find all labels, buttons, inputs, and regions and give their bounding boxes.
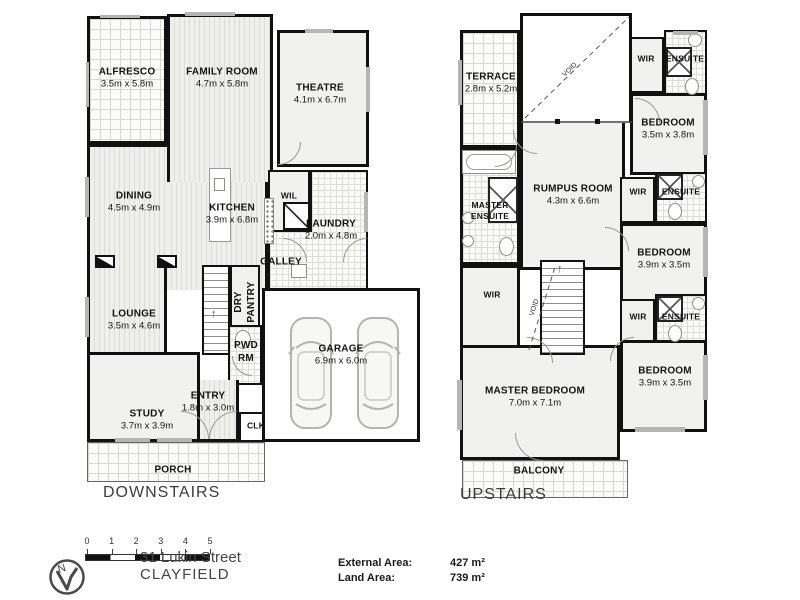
room-label-galley: GALLEY bbox=[260, 256, 302, 269]
room-label-wir-top: WIR bbox=[637, 53, 654, 64]
address-suburb: CLAYFIELD bbox=[140, 566, 241, 583]
column-marker bbox=[95, 255, 115, 268]
upstairs-plan: ↑ VOID VOID bbox=[455, 5, 715, 515]
downstairs-title: DOWNSTAIRS bbox=[103, 484, 220, 502]
window-marker bbox=[157, 438, 192, 442]
room-label-clk: CLK bbox=[247, 420, 265, 431]
room-label-bedroom-mid: BEDROOM3.9m x 3.5m bbox=[637, 246, 691, 271]
room-label-wir-mid: WIR bbox=[629, 186, 646, 197]
room-label-ensuite-bottom: ENSUITE bbox=[662, 311, 700, 322]
room-label-laundry: LAUNDRY2.0m x 4.8m bbox=[305, 217, 357, 242]
north-icon: N bbox=[46, 556, 88, 598]
window-marker bbox=[86, 62, 89, 107]
door-arc bbox=[610, 337, 634, 361]
room-label-theatre: THEATRE4.1m x 6.7m bbox=[294, 81, 346, 106]
address-street: 31 Lukin Street bbox=[140, 549, 241, 566]
scale-number: 0 bbox=[84, 536, 89, 546]
room-label-lounge: LOUNGE3.5m x 4.6m bbox=[108, 307, 160, 332]
scale-number: 4 bbox=[183, 536, 188, 546]
window-marker bbox=[115, 438, 150, 442]
window-marker bbox=[366, 67, 370, 112]
staircase-up bbox=[540, 260, 585, 355]
toilet-icon bbox=[668, 325, 682, 342]
room-wir-left bbox=[460, 265, 520, 353]
room-label-pwd-rm: PWD RM bbox=[231, 339, 261, 365]
external-area-label: External Area: bbox=[338, 557, 450, 569]
car-icon bbox=[355, 314, 401, 432]
external-area-value: 427 m² bbox=[450, 557, 485, 569]
room-label-family: FAMILY ROOM4.7m x 5.8m bbox=[186, 65, 258, 90]
room-label-ensuite-top: ENSUITE bbox=[666, 53, 704, 64]
window-marker bbox=[185, 12, 235, 16]
room-label-study: STUDY3.7m x 3.9m bbox=[121, 407, 173, 432]
room-label-kitchen: KITCHEN3.9m x 6.8m bbox=[206, 201, 258, 226]
window-marker bbox=[703, 355, 708, 400]
room-label-rumpus: RUMPUS ROOM4.3m x 6.6m bbox=[533, 182, 612, 207]
room-label-porch: PORCH bbox=[154, 464, 191, 477]
room-label-garage: GARAGE6.9m x 6.0m bbox=[315, 342, 367, 367]
window-marker bbox=[457, 380, 462, 430]
room-wir-top bbox=[630, 37, 664, 93]
scale-number: 2 bbox=[134, 536, 139, 546]
scale-number: 5 bbox=[207, 536, 212, 546]
floorplan-canvas: ↑ bbox=[0, 0, 800, 600]
room-label-dry-pantry: DRY PANTRY bbox=[232, 276, 258, 328]
upstairs-title: UPSTAIRS bbox=[460, 486, 547, 504]
basin-icon bbox=[462, 235, 474, 247]
window-marker bbox=[673, 31, 698, 35]
toilet-icon bbox=[685, 78, 699, 95]
window-marker bbox=[458, 60, 462, 105]
void-label: VOID bbox=[529, 298, 541, 316]
room-label-bedroom-bottom: BEDROOM3.9m x 3.5m bbox=[638, 364, 692, 389]
car-icon bbox=[288, 314, 334, 432]
toilet-icon bbox=[499, 237, 514, 256]
room-label-wir-left: WIR bbox=[483, 289, 500, 300]
room-void bbox=[520, 13, 632, 123]
room-label-master-ensuite: MASTER ENSUITE bbox=[461, 200, 519, 222]
basin-icon bbox=[692, 297, 705, 310]
land-area-value: 739 m² bbox=[450, 572, 485, 584]
window-marker bbox=[305, 29, 333, 33]
room-label-balcony: BALCONY bbox=[514, 465, 565, 478]
window-marker bbox=[635, 427, 685, 432]
downstairs-plan: ↑ bbox=[85, 12, 431, 512]
room-label-master-bedroom: MASTER BEDROOM7.0m x 7.1m bbox=[485, 384, 585, 409]
column-marker bbox=[157, 255, 177, 268]
sink-icon bbox=[214, 178, 225, 191]
room-label-bedroom-top: BEDROOM3.5m x 3.8m bbox=[641, 116, 695, 141]
room-label-alfresco: ALFRESCO3.5m x 5.8m bbox=[99, 65, 156, 90]
scale-number: 1 bbox=[109, 536, 114, 546]
external-area-row: External Area: 427 m² bbox=[338, 557, 485, 569]
window-marker bbox=[364, 192, 368, 232]
room-label-terrace: TERRACE2.8m x 5.2m bbox=[465, 70, 517, 95]
room-wir-mid bbox=[620, 177, 655, 223]
land-area-row: Land Area: 739 m² bbox=[338, 572, 485, 584]
window-marker bbox=[703, 227, 708, 277]
cooktop-icon bbox=[264, 198, 274, 244]
window-marker bbox=[85, 297, 89, 337]
room-label-dining: DINING4.5m x 4.9m bbox=[108, 189, 160, 214]
window-marker bbox=[100, 15, 140, 18]
toilet-icon bbox=[668, 203, 682, 220]
window-marker bbox=[703, 100, 708, 155]
room-label-wil: WIL bbox=[281, 190, 297, 201]
room-label-wir-bottom: WIR bbox=[629, 311, 646, 322]
area-summary: External Area: 427 m² Land Area: 739 m² bbox=[338, 557, 485, 587]
land-area-label: Land Area: bbox=[338, 572, 450, 584]
room-label-ensuite-mid: ENSUITE bbox=[662, 186, 700, 197]
window-marker bbox=[85, 177, 89, 217]
room-family bbox=[167, 14, 273, 182]
address-block: 31 Lukin Street CLAYFIELD bbox=[140, 549, 241, 583]
basin-icon bbox=[688, 33, 702, 47]
up-arrow-icon: ↑ bbox=[211, 308, 217, 320]
room-label-entry: ENTRY1.8m x 3.0m bbox=[182, 389, 234, 414]
up-arrow-icon: ↑ bbox=[557, 263, 563, 275]
scale-number: 3 bbox=[158, 536, 163, 546]
